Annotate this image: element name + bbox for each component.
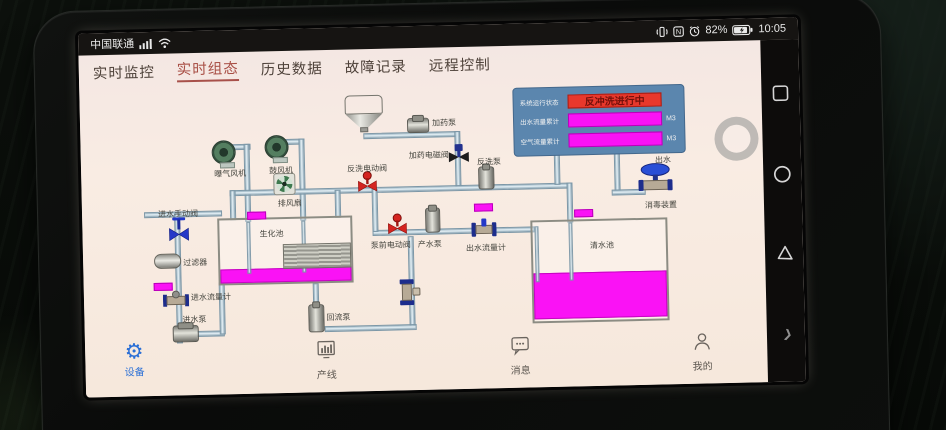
outlet-control-valve-icon[interactable]	[637, 162, 674, 204]
tab-realtime-monitor[interactable]: 实时监控	[93, 60, 155, 82]
tab-remote-control[interactable]: 远程控制	[429, 53, 491, 75]
air-total-value	[568, 132, 662, 148]
pump-front-electric-valve-label: 泵前电动阀	[371, 239, 411, 251]
phone-body: PORSCHE DESIGN 中国联通	[32, 0, 891, 430]
unit-label: M3	[666, 135, 678, 142]
info-row: 空气流量累计 M3	[520, 131, 678, 149]
unit-label: M3	[666, 115, 678, 122]
filter-icon[interactable]	[154, 253, 181, 269]
inlet-manual-valve-label: 进水手动阀	[158, 208, 198, 220]
alarm-icon	[689, 25, 700, 36]
aeration-value	[247, 211, 266, 219]
product-pump-icon[interactable]	[425, 207, 441, 232]
battery-percent-label: 82%	[705, 24, 727, 36]
battery-icon	[732, 24, 753, 35]
clean-tank-label: 清水池	[590, 240, 614, 252]
disinfection-label: 消毒装置	[645, 199, 677, 211]
info-row-label: 空气流量累计	[520, 136, 564, 147]
blower-icon[interactable]	[264, 135, 289, 160]
drain-flanged-valve-icon[interactable]	[398, 279, 423, 311]
clock-label: 10:05	[758, 23, 786, 36]
dosing-solenoid-valve-label: 加药电磁阀	[409, 149, 449, 161]
signal-bars-icon	[139, 37, 153, 48]
backwash-pump-label: 反洗泵	[477, 156, 501, 168]
scada-app: 实时监控 实时组态 历史数据 故障记录 远程控制	[78, 40, 768, 397]
backwash-electric-valve-label: 反洗电动阀	[347, 163, 387, 175]
inlet-pump-label: 进水泵	[182, 314, 206, 326]
reflux-pump-label: 回流泵	[326, 312, 350, 324]
wifi-icon	[158, 37, 171, 48]
inlet-flow-meter-icon[interactable]	[163, 290, 189, 313]
bottom-nav-devices[interactable]: ⚙ 设备	[102, 342, 167, 379]
back-triangle-icon[interactable]	[774, 245, 794, 269]
pump-front-electric-valve-icon[interactable]	[387, 213, 408, 240]
bottom-nav-label: 产线	[295, 365, 359, 381]
dosing-pump-label: 加药泵	[432, 117, 456, 129]
phone-screen: 中国联通 N	[78, 17, 806, 397]
bottom-nav-production-line[interactable]: 产线	[294, 339, 359, 381]
info-row: 出水流量累计 M3	[520, 112, 678, 130]
clean-water-level	[534, 270, 668, 319]
dosing-solenoid-valve-icon[interactable]	[447, 144, 472, 169]
status-info-panel: 系统运行状态 反冲洗进行中 出水流量累计 M3 空气流量累计 M3	[512, 84, 686, 157]
profile-icon	[691, 331, 713, 351]
bottom-nav-profile[interactable]: 我的	[670, 331, 735, 373]
gear-icon: ⚙	[102, 342, 166, 363]
tank-flow-value	[574, 209, 593, 217]
tab-realtime-config[interactable]: 实时组态	[177, 57, 240, 82]
inlet-flow-meter-label: 进水流量计	[191, 291, 231, 303]
aeration-blower-label: 曝气风机	[214, 168, 246, 180]
aeration-blower-icon[interactable]	[211, 140, 236, 165]
pipe	[219, 282, 226, 334]
outlet-flow-meter-label: 出水流量计	[466, 242, 506, 254]
product-pump-label: 产水泵	[418, 238, 442, 250]
blower-label: 鼓风机	[269, 165, 293, 177]
bottom-nav-label: 我的	[670, 357, 734, 373]
pipe	[325, 324, 417, 332]
nfc-icon: N	[673, 25, 684, 36]
chemical-hopper-icon[interactable]	[344, 95, 383, 133]
desk-background: PORSCHE DESIGN 中国联通	[0, 0, 946, 430]
backwash-pump-icon[interactable]	[478, 166, 495, 189]
dosing-pump-icon[interactable]	[407, 118, 429, 133]
production-line-icon	[315, 340, 337, 360]
bio-tank-label: 生化池	[259, 228, 283, 240]
info-row: 系统运行状态 反冲洗进行中	[519, 92, 677, 110]
info-row-label: 出水流量累计	[520, 116, 564, 127]
bottom-nav-label: 消息	[489, 361, 553, 377]
tab-fault-records[interactable]: 故障记录	[345, 55, 407, 77]
outlet-total-value	[568, 112, 662, 128]
message-icon	[509, 335, 531, 355]
filter-label: 过滤器	[183, 257, 207, 269]
bio-tank-level	[220, 267, 351, 284]
bottom-nav-messages[interactable]: 消息	[488, 335, 553, 377]
tab-history-data[interactable]: 历史数据	[261, 57, 323, 79]
recents-square-icon[interactable]	[772, 85, 789, 107]
membrane-module	[283, 243, 352, 270]
android-nav-bar: ❯	[760, 39, 806, 382]
outlet-flow-meter-icon[interactable]	[471, 218, 497, 243]
pipe	[566, 182, 573, 222]
bottom-nav-label: 设备	[102, 363, 166, 379]
reflux-pump-icon[interactable]	[308, 304, 325, 332]
svg-text:N: N	[676, 27, 682, 36]
pipe	[230, 190, 237, 220]
info-row-label: 系统运行状态	[520, 96, 564, 107]
hide-nav-chevron-icon[interactable]: ❯	[782, 327, 793, 341]
outlet-label: 出水	[655, 154, 671, 165]
floating-ball[interactable]	[714, 116, 759, 161]
inlet-flow-value	[154, 283, 173, 291]
clean-water-tank	[530, 217, 669, 323]
inlet-pump-icon[interactable]	[173, 325, 199, 343]
inlet-manual-valve-icon[interactable]	[168, 217, 190, 247]
pipe	[335, 190, 342, 218]
carrier-label: 中国联通	[90, 35, 134, 52]
system-status-value: 反冲洗进行中	[567, 92, 661, 108]
outlet-flow-value	[474, 203, 493, 211]
vibrate-icon	[656, 26, 668, 37]
pipe	[243, 144, 251, 222]
backwash-electric-valve-icon[interactable]	[357, 171, 378, 198]
exhaust-fan-label: 排风扇	[278, 198, 302, 210]
home-circle-icon[interactable]	[773, 164, 793, 188]
